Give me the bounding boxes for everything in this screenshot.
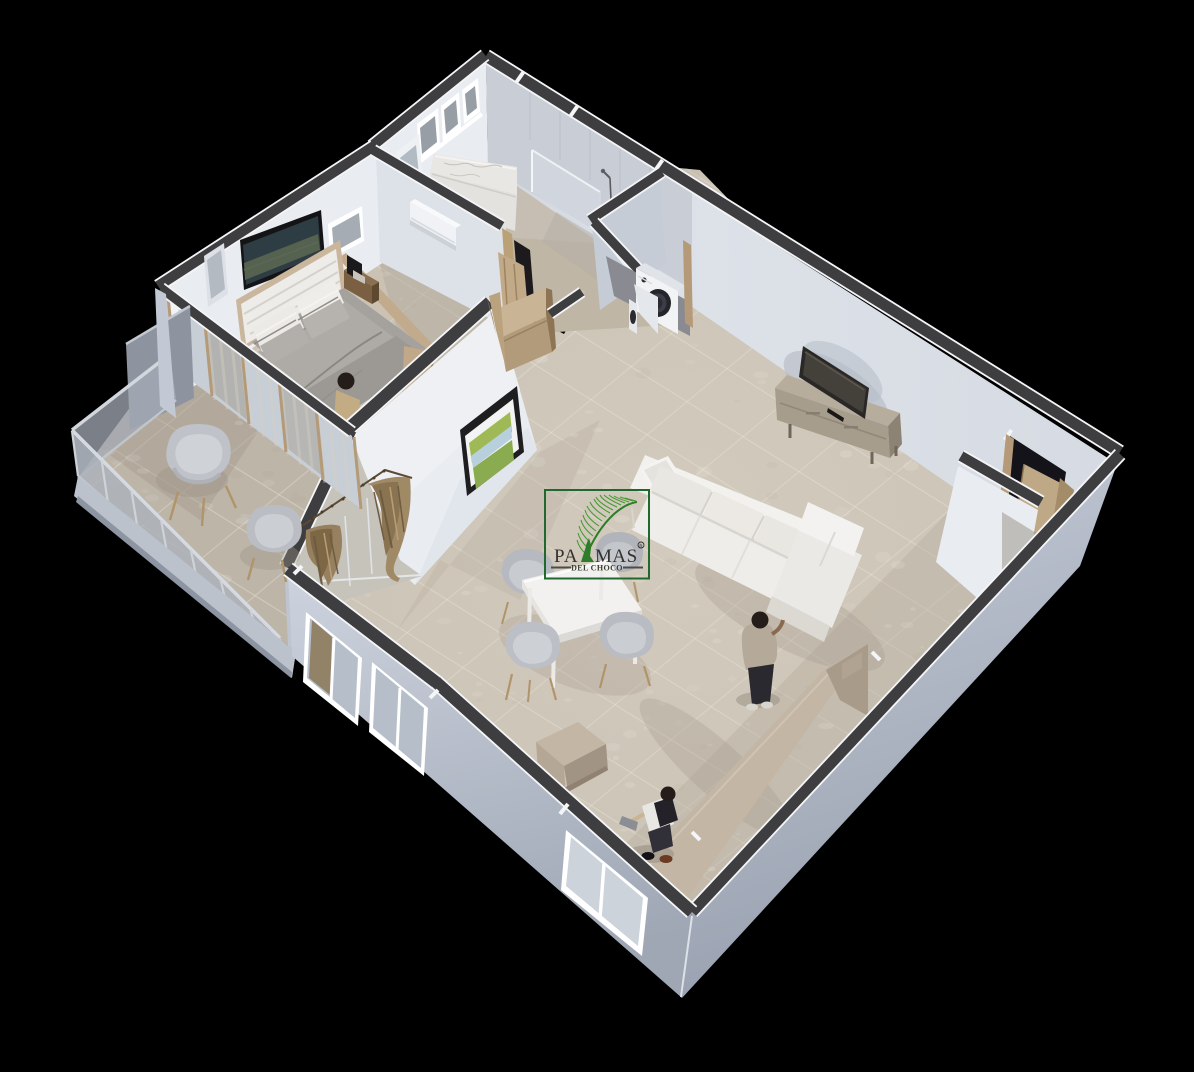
svg-text:DEL CHOCO: DEL CHOCO <box>571 564 623 573</box>
